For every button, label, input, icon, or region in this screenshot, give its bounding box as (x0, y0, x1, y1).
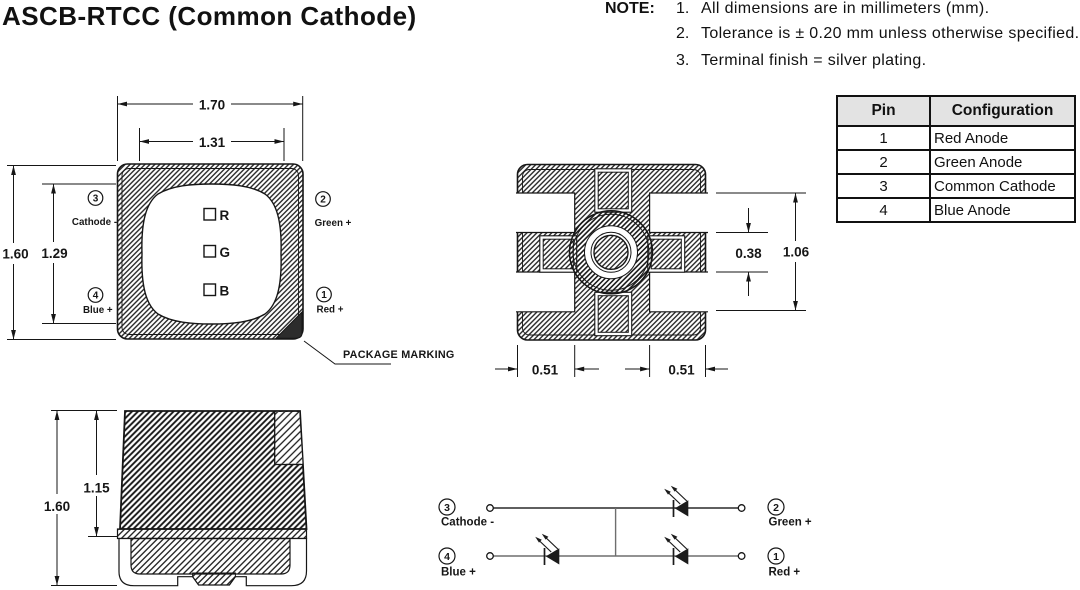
svg-text:Cathode -: Cathode - (441, 517, 494, 529)
svg-text:3: 3 (93, 194, 99, 205)
svg-text:Blue +: Blue + (441, 567, 476, 579)
svg-text:Green +: Green + (769, 517, 812, 529)
svg-text:B: B (220, 284, 230, 299)
svg-text:1: 1 (773, 551, 779, 563)
svg-text:1.31: 1.31 (199, 135, 226, 150)
svg-text:Red +: Red + (317, 305, 344, 316)
svg-text:Blue +: Blue + (83, 305, 113, 316)
svg-text:0.51: 0.51 (532, 363, 559, 378)
svg-text:1: 1 (321, 290, 327, 301)
svg-text:PACKAGE MARKING: PACKAGE MARKING (343, 349, 455, 361)
svg-text:1.60: 1.60 (2, 247, 28, 262)
svg-text:G: G (220, 245, 231, 260)
svg-text:4: 4 (444, 551, 450, 563)
svg-text:2: 2 (773, 502, 779, 514)
svg-text:1.29: 1.29 (41, 246, 67, 261)
svg-text:2: 2 (320, 195, 326, 206)
svg-text:Cathode -: Cathode - (72, 217, 117, 228)
svg-text:0.51: 0.51 (668, 363, 695, 378)
svg-text:1.70: 1.70 (199, 98, 225, 113)
svg-text:Green +: Green + (315, 218, 352, 229)
svg-text:R: R (220, 208, 230, 223)
svg-text:3: 3 (444, 502, 450, 514)
svg-text:0.38: 0.38 (735, 246, 762, 261)
svg-text:4: 4 (93, 291, 99, 302)
svg-text:1.06: 1.06 (783, 245, 810, 260)
svg-text:Red +: Red + (769, 567, 801, 579)
svg-text:1.60: 1.60 (44, 499, 70, 514)
svg-text:1.15: 1.15 (83, 481, 110, 496)
